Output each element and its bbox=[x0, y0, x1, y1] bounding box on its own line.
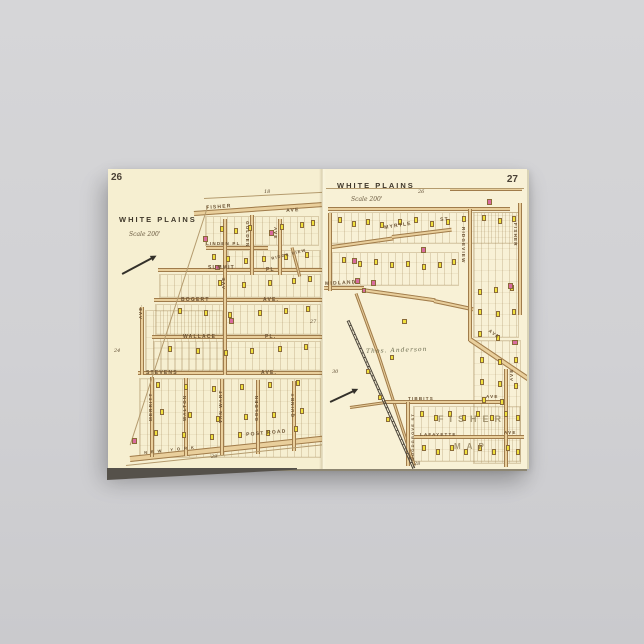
street-label: AVE bbox=[486, 395, 499, 400]
building-marker bbox=[294, 426, 298, 432]
building-marker bbox=[406, 261, 410, 267]
street-label: SUMMIT bbox=[208, 266, 235, 271]
building-marker bbox=[188, 412, 192, 418]
building-marker bbox=[300, 222, 304, 228]
building-marker bbox=[516, 449, 520, 455]
boundary-line bbox=[204, 192, 322, 199]
building-marker bbox=[238, 432, 242, 438]
building-marker bbox=[498, 381, 502, 387]
street-road bbox=[328, 213, 332, 291]
building-marker bbox=[240, 384, 244, 390]
street-road bbox=[250, 215, 254, 275]
street-label: GOLDEN bbox=[245, 221, 250, 247]
building-marker bbox=[308, 276, 312, 282]
street-label: AVE bbox=[510, 368, 515, 381]
building-marker bbox=[182, 432, 186, 438]
street-label: FISHER bbox=[438, 415, 507, 424]
building-marker bbox=[421, 247, 426, 253]
street-label: RIDGEVIEW bbox=[461, 227, 466, 264]
building-marker bbox=[492, 449, 496, 455]
building-marker bbox=[296, 380, 300, 386]
building-marker bbox=[436, 449, 440, 455]
building-marker bbox=[305, 252, 309, 258]
north-arrow bbox=[122, 257, 153, 274]
building-marker bbox=[178, 308, 182, 314]
building-marker bbox=[229, 318, 234, 324]
building-marker bbox=[362, 288, 366, 293]
building-marker bbox=[220, 226, 224, 232]
building-marker bbox=[366, 369, 370, 374]
street-label: AVE bbox=[273, 227, 278, 240]
building-marker bbox=[311, 220, 315, 226]
map-page-27: 27 WHITE PLAINS Scale 200' 263028MYRTLES… bbox=[322, 169, 527, 469]
building-marker bbox=[244, 258, 248, 264]
plate-ref-number: 29 bbox=[211, 455, 217, 460]
street-road bbox=[206, 246, 268, 250]
plate-ref-number: 24 bbox=[114, 349, 120, 354]
building-marker bbox=[242, 282, 246, 288]
building-marker bbox=[278, 346, 282, 352]
building-marker bbox=[512, 309, 516, 315]
building-marker bbox=[422, 445, 426, 451]
street-label: MERRITT bbox=[149, 393, 154, 421]
building-marker bbox=[516, 415, 520, 421]
building-marker bbox=[226, 256, 230, 262]
building-marker bbox=[390, 355, 394, 360]
street-label: BOGERT bbox=[181, 298, 210, 303]
building-marker bbox=[156, 382, 160, 388]
building-marker bbox=[184, 384, 188, 390]
building-marker bbox=[498, 218, 502, 224]
parcel-hatch-block bbox=[474, 213, 518, 337]
building-marker bbox=[452, 259, 456, 265]
street-label: STEVENS bbox=[146, 371, 178, 376]
plate-ref-number: 30 bbox=[332, 370, 338, 375]
building-marker bbox=[414, 217, 418, 223]
north-arrow-head bbox=[351, 386, 359, 394]
street-road bbox=[362, 288, 436, 302]
building-marker bbox=[386, 417, 390, 422]
street-label: TIBBITS bbox=[408, 397, 434, 402]
building-marker bbox=[512, 340, 518, 345]
building-marker bbox=[498, 359, 502, 365]
building-marker bbox=[204, 310, 208, 316]
building-marker bbox=[480, 357, 484, 363]
plate-ref-number: 26 bbox=[418, 190, 424, 195]
street-label: WALLACE bbox=[183, 335, 216, 340]
street-label: WALTON bbox=[183, 395, 188, 421]
street-label: LAFAYETTE bbox=[420, 433, 457, 438]
building-marker bbox=[210, 434, 214, 440]
building-marker bbox=[494, 287, 498, 293]
street-road bbox=[384, 400, 504, 404]
building-marker bbox=[250, 348, 254, 354]
building-marker bbox=[272, 412, 276, 418]
building-marker bbox=[258, 310, 262, 316]
building-marker bbox=[482, 215, 486, 221]
building-marker bbox=[438, 262, 442, 268]
street-label: VAN WART bbox=[219, 390, 224, 423]
building-marker bbox=[496, 311, 500, 317]
plate-ref-number: 18 bbox=[264, 190, 270, 195]
street-label: LINDEN PL bbox=[206, 242, 241, 247]
street-road bbox=[152, 335, 322, 340]
building-marker bbox=[508, 283, 513, 289]
street-label: Thos. Anderson bbox=[366, 347, 428, 355]
north-arrow-head bbox=[150, 253, 158, 261]
street-label: PL bbox=[266, 268, 275, 273]
building-marker bbox=[280, 224, 284, 230]
building-marker bbox=[304, 344, 308, 350]
building-marker bbox=[160, 409, 164, 415]
building-marker bbox=[420, 411, 424, 417]
product-backdrop: 26 WHITE PLAINS Scale 200' 18242729FISHE… bbox=[0, 0, 644, 644]
building-marker bbox=[430, 221, 434, 227]
street-label: ST bbox=[440, 217, 449, 223]
street-label: PL. bbox=[265, 335, 276, 340]
street-label: AVE. bbox=[261, 371, 277, 376]
building-marker bbox=[268, 382, 272, 388]
map-title-left: WHITE PLAINS bbox=[119, 215, 197, 224]
building-marker bbox=[284, 308, 288, 314]
page-number-right: 27 bbox=[507, 174, 518, 185]
canvas-bottom-edge-wedge bbox=[107, 468, 297, 480]
building-marker bbox=[390, 262, 394, 268]
building-marker bbox=[500, 399, 504, 405]
street-road bbox=[468, 209, 472, 341]
building-marker bbox=[478, 331, 482, 337]
building-marker bbox=[374, 259, 378, 265]
street-label: AVE bbox=[504, 431, 517, 436]
building-marker bbox=[268, 280, 272, 286]
building-marker bbox=[196, 348, 200, 354]
building-marker bbox=[352, 221, 356, 227]
street-road bbox=[350, 401, 386, 409]
building-marker bbox=[224, 350, 228, 356]
building-marker bbox=[244, 414, 248, 420]
building-marker bbox=[358, 261, 362, 267]
street-road bbox=[154, 298, 322, 303]
map-title-right: WHITE PLAINS bbox=[337, 181, 415, 190]
street-label: AVE bbox=[222, 276, 227, 289]
building-marker bbox=[402, 319, 407, 324]
building-marker bbox=[371, 280, 376, 286]
street-label: GOLDEN bbox=[255, 395, 260, 421]
north-arrow bbox=[330, 390, 354, 402]
street-road bbox=[518, 203, 522, 315]
street-label: AVE. bbox=[263, 298, 279, 303]
street-label: FISHER bbox=[513, 223, 518, 247]
building-marker bbox=[487, 199, 492, 205]
street-road bbox=[328, 207, 510, 211]
street-label: QUINBY bbox=[291, 392, 296, 417]
building-marker bbox=[292, 278, 296, 284]
building-marker bbox=[480, 379, 484, 385]
canvas-print: 26 WHITE PLAINS Scale 200' 18242729FISHE… bbox=[108, 169, 527, 469]
building-marker bbox=[478, 309, 482, 315]
map-page-26: 26 WHITE PLAINS Scale 200' 18242729FISHE… bbox=[108, 169, 322, 469]
building-marker bbox=[342, 257, 346, 263]
street-label: AVE. bbox=[139, 304, 144, 319]
building-marker bbox=[378, 395, 382, 400]
building-marker bbox=[422, 264, 426, 270]
plate-ref-number: 28 bbox=[414, 462, 420, 467]
building-marker bbox=[234, 228, 238, 234]
building-marker bbox=[366, 219, 370, 225]
building-marker bbox=[514, 357, 518, 363]
street-label: WOODGROVE ST bbox=[411, 413, 415, 461]
building-marker bbox=[478, 289, 482, 295]
building-marker bbox=[154, 430, 158, 436]
building-marker bbox=[506, 445, 510, 451]
building-marker bbox=[212, 254, 216, 260]
map-scale-right: Scale 200' bbox=[351, 196, 383, 203]
building-marker bbox=[300, 408, 304, 414]
building-marker bbox=[462, 216, 466, 222]
canvas-right-edge bbox=[527, 170, 529, 469]
page-fold-crease bbox=[319, 169, 326, 469]
page-number-left: 26 bbox=[111, 172, 122, 183]
building-marker bbox=[338, 217, 342, 223]
building-marker bbox=[514, 383, 518, 389]
street-label: MAP bbox=[454, 443, 490, 451]
building-marker bbox=[262, 256, 266, 262]
building-marker bbox=[132, 438, 137, 444]
street-label: AVE bbox=[286, 208, 300, 214]
building-marker bbox=[306, 306, 310, 312]
plate-ref-number: 27 bbox=[310, 320, 316, 325]
building-marker bbox=[212, 386, 216, 392]
building-marker bbox=[512, 216, 516, 222]
map-layers-right: 263028MYRTLESTMIDLANDRIDGEVIEWFISHERAVEA… bbox=[322, 169, 527, 469]
map-layers-left: 18242729FISHERAVELINDEN PLGOLDENAVEAVEAV… bbox=[108, 169, 322, 469]
map-scale-left: Scale 200' bbox=[129, 231, 161, 238]
building-marker bbox=[168, 346, 172, 352]
building-marker bbox=[352, 258, 357, 264]
